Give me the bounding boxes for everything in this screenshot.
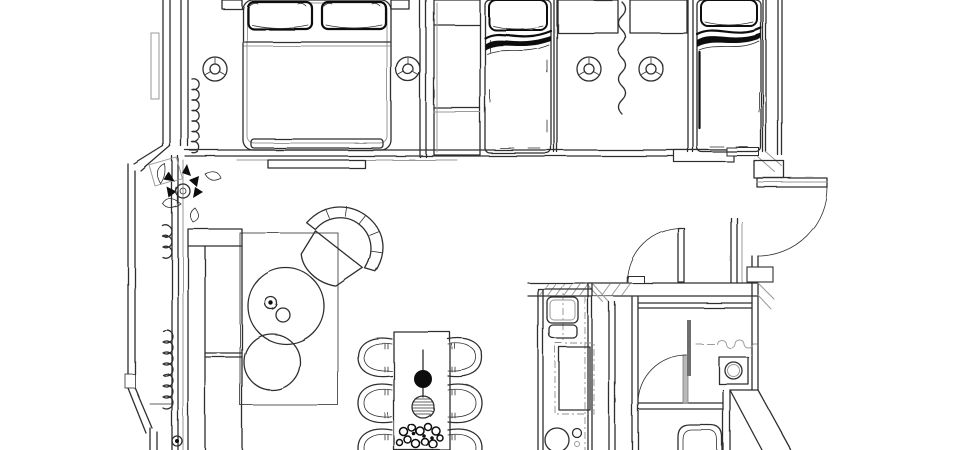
washing-machine — [719, 357, 748, 384]
centerpiece — [397, 350, 443, 448]
bedside-shelf — [391, 0, 409, 9]
wall-partitions-top — [420, 0, 693, 157]
bathroom — [678, 320, 757, 450]
blanket-fold — [697, 33, 761, 47]
ceiling-light-icon — [396, 57, 420, 81]
wall-bathroom — [609, 297, 752, 450]
kitchen — [538, 283, 594, 450]
ceiling-light-icon — [577, 57, 601, 81]
bedroom-second — [485, 0, 761, 153]
sink — [545, 428, 582, 450]
sofa — [188, 229, 242, 450]
cooktop — [547, 297, 578, 338]
dining-area — [358, 332, 482, 450]
bedside-shelf — [222, 0, 242, 9]
bedroom-main — [192, 0, 480, 155]
armchair — [283, 189, 398, 304]
floor-mat — [558, 0, 618, 33]
faucet — [573, 429, 582, 438]
ceiling-light-icon — [639, 57, 663, 81]
interior-door-corridor — [627, 228, 684, 282]
corridor — [150, 158, 365, 409]
wall-left-upper — [134, 0, 188, 171]
door-swing-arc — [627, 228, 681, 282]
walls — [125, 0, 791, 450]
window-ledge — [172, 156, 183, 450]
wall-left-lower — [125, 164, 172, 450]
pillow — [322, 2, 386, 29]
floor-mat — [630, 0, 687, 33]
knob — [172, 436, 182, 446]
wardrobe — [434, 0, 480, 155]
plant — [158, 164, 221, 222]
shower-curtain-icon — [696, 340, 757, 348]
wall-stub-corridor — [731, 218, 742, 283]
dining-chair — [358, 429, 392, 450]
cup — [276, 308, 290, 322]
door-stop — [628, 276, 644, 283]
entry-door — [757, 178, 827, 256]
dining-chair — [448, 384, 482, 423]
coffee-table-large — [248, 268, 324, 344]
cup — [265, 297, 277, 309]
living-room — [172, 189, 399, 450]
shower-rail — [687, 320, 691, 376]
threshold — [747, 267, 773, 282]
bathtub — [678, 425, 722, 450]
pillow — [489, 0, 547, 30]
tv-console — [268, 160, 365, 168]
dining-table — [394, 332, 450, 450]
door-swing-arc — [638, 355, 686, 403]
pillow — [701, 0, 757, 26]
dining-chair — [448, 429, 482, 450]
counter — [538, 283, 592, 450]
single-bed — [485, 0, 551, 153]
door-swing-arc — [758, 187, 827, 256]
pendant-ball — [414, 370, 432, 388]
wall-entry — [730, 161, 791, 450]
curtain-divider — [619, 2, 626, 114]
curtain-coil-icon — [163, 225, 172, 258]
coffee-table-small — [244, 334, 300, 390]
floor-plan-svg — [0, 0, 980, 450]
floor-plan-canvas — [0, 0, 980, 450]
dining-chair — [358, 384, 392, 423]
dining-chair — [358, 338, 392, 377]
bathroom-door — [638, 355, 688, 403]
vase — [412, 396, 434, 418]
pillow — [248, 2, 312, 29]
single-bed — [697, 0, 761, 152]
doors — [627, 178, 827, 403]
dining-chair — [448, 338, 482, 377]
flower-bouquet — [397, 424, 443, 449]
ceiling-light-icon — [203, 57, 227, 81]
curtain-coil-icon — [192, 79, 199, 153]
